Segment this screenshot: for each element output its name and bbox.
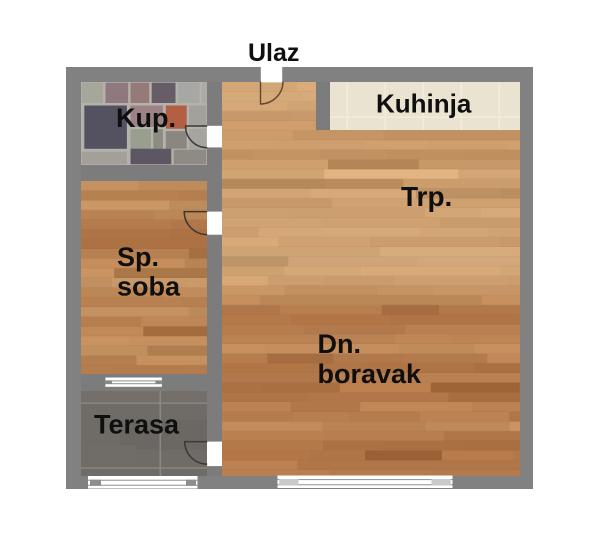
svg-text:Trp.: Trp. (401, 181, 452, 212)
svg-text:Ulaz: Ulaz (248, 39, 299, 67)
svg-text:boravak: boravak (318, 359, 423, 389)
svg-text:Kup.: Kup. (116, 103, 176, 133)
svg-text:soba: soba (117, 272, 181, 302)
svg-text:Kuhinja: Kuhinja (376, 89, 472, 119)
svg-text:Terasa: Terasa (94, 410, 180, 440)
svg-text:Dn.: Dn. (318, 329, 362, 359)
svg-text:Sp.: Sp. (117, 242, 159, 272)
